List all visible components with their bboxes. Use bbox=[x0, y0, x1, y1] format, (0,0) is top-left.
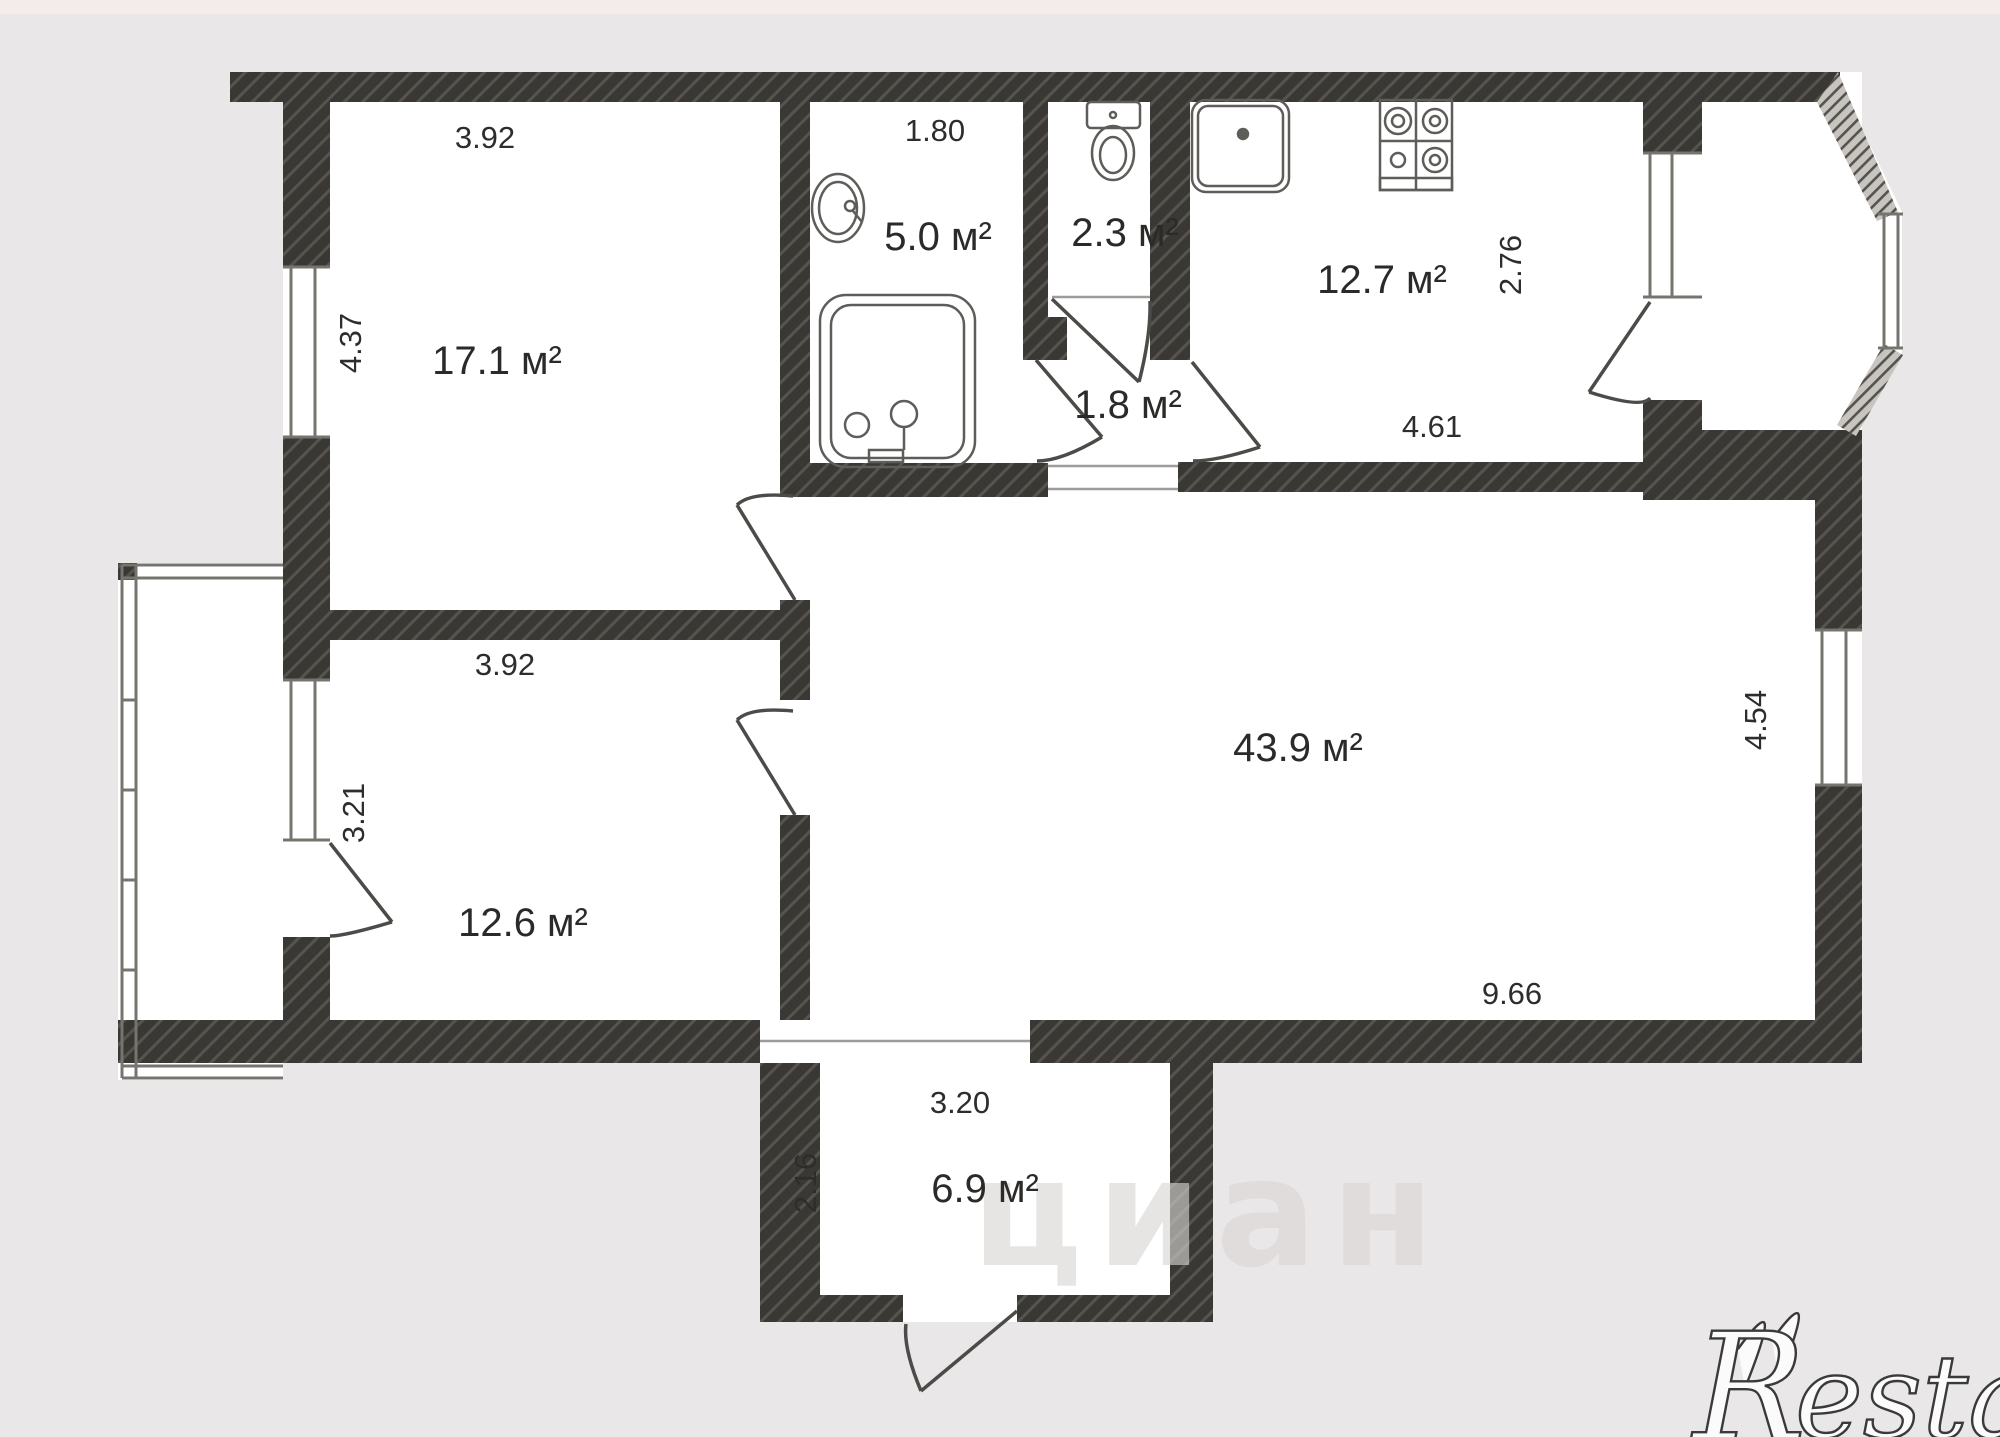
wall-left-middle bbox=[283, 437, 330, 680]
entrance-door-icon bbox=[906, 1311, 1017, 1391]
wall-bedroom1-right bbox=[780, 100, 810, 497]
wall-kitchen-right-upper bbox=[1643, 100, 1702, 153]
label-area-bathroom: 5.0 м² bbox=[884, 215, 992, 259]
floor-plan-image: циан 17.1 м² 5.0 м² 2.3 м² 12.7 м² 1.8 м… bbox=[0, 0, 2000, 1437]
dim-living-depth: 4.54 bbox=[1738, 690, 1773, 750]
wall-entrance-bottom-left bbox=[760, 1295, 903, 1322]
left-balcony-floor bbox=[118, 563, 283, 1080]
dim-kitchen-depth: 2.76 bbox=[1493, 235, 1528, 295]
label-area-bedroom1: 17.1 м² bbox=[432, 339, 562, 383]
dim-bedroom1-depth: 4.37 bbox=[333, 313, 368, 373]
wall-bathroom-door-stub bbox=[1023, 317, 1067, 360]
label-area-living: 43.9 м² bbox=[1233, 726, 1363, 770]
wall-left-upper bbox=[283, 72, 330, 267]
wall-left-lower bbox=[283, 937, 330, 1020]
wall-bottom-right bbox=[1030, 1020, 1862, 1063]
wall-kitchen-bottom bbox=[1178, 462, 1643, 492]
label-area-hall: 1.8 м² bbox=[1074, 383, 1182, 427]
dim-bathroom-width: 1.80 bbox=[905, 113, 965, 148]
cian-watermark: циан bbox=[971, 1127, 1448, 1301]
wall-kitchen-right-lower bbox=[1643, 400, 1702, 500]
dim-bedroom2-width: 3.92 bbox=[475, 647, 535, 682]
wall-right-upper bbox=[1815, 500, 1862, 630]
label-area-entrance: 6.9 м² bbox=[931, 1167, 1039, 1211]
page-top-strip bbox=[0, 0, 2000, 14]
wall-bedroom2-right bbox=[780, 815, 810, 1020]
wall-bay-balcony-bottom bbox=[1702, 430, 1862, 500]
dim-living-width: 9.66 bbox=[1482, 976, 1542, 1011]
wall-bottom-left bbox=[118, 1020, 760, 1063]
label-area-bedroom2: 12.6 м² bbox=[458, 901, 588, 945]
wall-top bbox=[230, 72, 1840, 102]
label-area-kitchen: 12.7 м² bbox=[1317, 258, 1447, 302]
floor-plan-svg: циан 17.1 м² 5.0 м² 2.3 м² 12.7 м² 1.8 м… bbox=[0, 0, 2000, 1437]
wall-right-lower bbox=[1815, 785, 1862, 1020]
dim-kitchen-width: 4.61 bbox=[1402, 409, 1462, 444]
wall-bedrooms-divider bbox=[283, 610, 810, 640]
restate-logo: R estate bbox=[1690, 1302, 2000, 1437]
restate-logo-initial: R bbox=[1690, 1302, 1806, 1437]
restate-logo-text: estate bbox=[1795, 1331, 2000, 1437]
dim-entrance-depth: 2.16 bbox=[788, 1153, 823, 1213]
dim-bedroom1-width: 3.92 bbox=[455, 120, 515, 155]
dim-bedroom2-depth: 3.21 bbox=[336, 783, 371, 843]
label-area-toilet: 2.3 м² bbox=[1071, 211, 1179, 255]
dim-entrance-width: 3.20 bbox=[930, 1085, 990, 1120]
